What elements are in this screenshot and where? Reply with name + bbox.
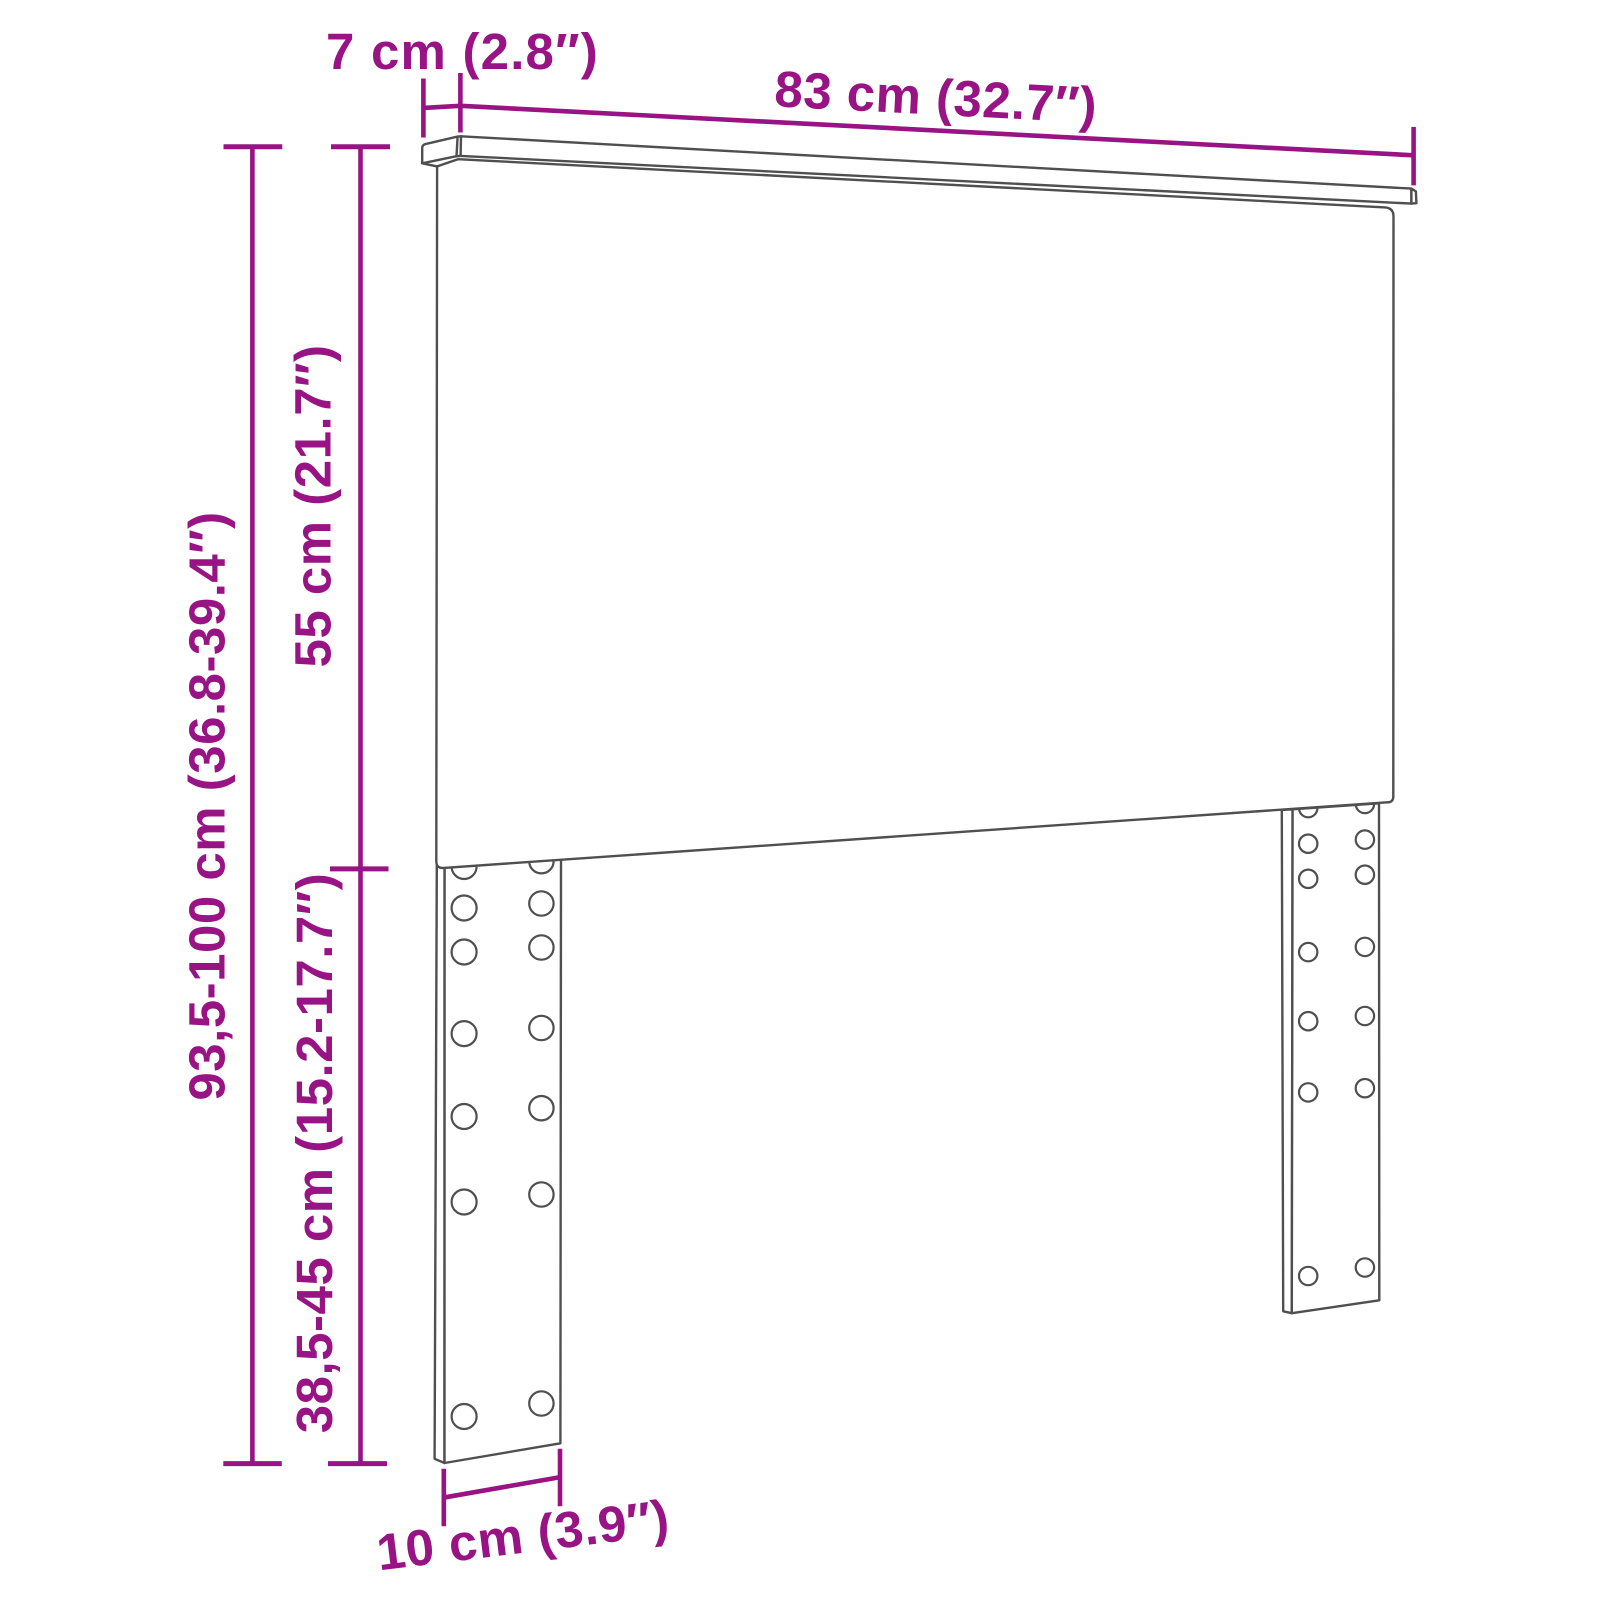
svg-text:38,5-45 cm (15.2-17.7″): 38,5-45 cm (15.2-17.7″) <box>286 873 343 1433</box>
svg-text:93,5-100 cm (36.8-39.4″): 93,5-100 cm (36.8-39.4″) <box>179 511 236 1100</box>
svg-text:55 cm (21.7″): 55 cm (21.7″) <box>285 345 342 668</box>
svg-text:7 cm (2.8″): 7 cm (2.8″) <box>326 23 599 80</box>
